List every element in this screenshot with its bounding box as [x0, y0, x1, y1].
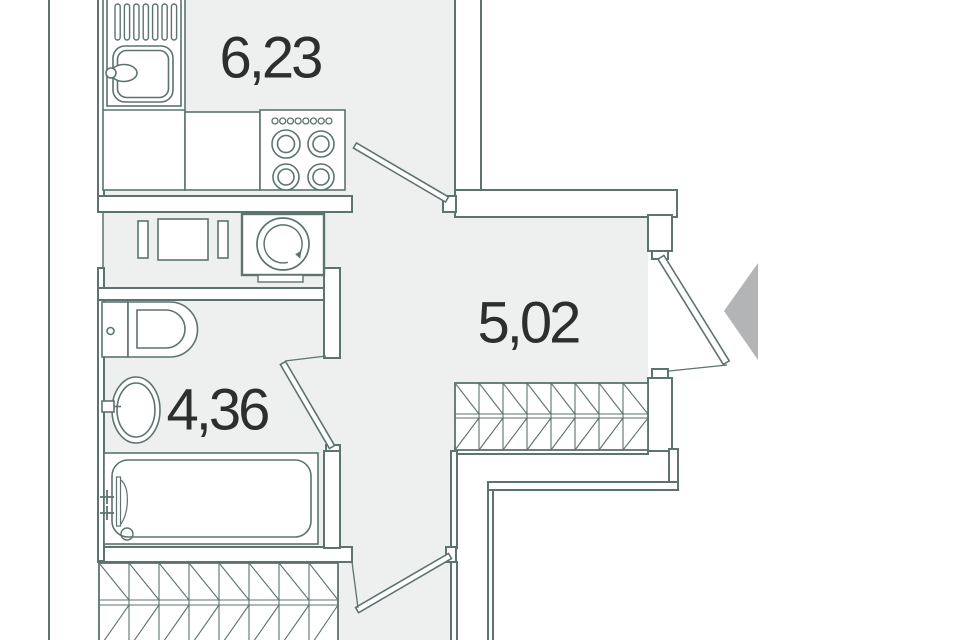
washing-machine-detail: [258, 275, 303, 282]
wall-bath-top: [98, 288, 340, 300]
wall-top-right-band: [455, 190, 677, 217]
niche-shelf-left-bar: [138, 221, 148, 258]
washbasin-tap-icon: [102, 401, 114, 412]
bathtub-inner: [112, 460, 311, 537]
toilet-bowl-inner: [137, 310, 185, 348]
hallway-floor-lower: [340, 383, 455, 549]
wall-lower-right-low: [451, 562, 457, 640]
wall-kitchen-bottom: [98, 196, 352, 212]
hallway-area-label: 5,02: [478, 290, 579, 357]
wall-bottom-boundary: [488, 482, 678, 490]
wall-bath-bottom: [98, 547, 352, 562]
kitchen-door-opening-floor: [344, 196, 443, 212]
wall-right-mid: [648, 378, 672, 451]
entrance-door-swing: [669, 365, 727, 371]
kitchen-area-label: 6,23: [220, 25, 321, 92]
entrance-arrow: [724, 263, 758, 360]
washbasin-inner: [117, 383, 155, 437]
floor-plan: 6,23 5,02 4,36: [0, 0, 960, 640]
niche-shelf: [158, 219, 208, 260]
living-room-wardrobe: [99, 563, 338, 640]
wall-bath-right-pillar: [324, 268, 340, 358]
wall-right-upper: [648, 215, 672, 251]
sink-faucet-base: [106, 68, 116, 78]
toilet-flush-button: [107, 328, 114, 335]
sink-drainer-icon: [115, 4, 177, 40]
hallway-wardrobe: [455, 383, 648, 450]
niche-shelf-right-bar: [218, 221, 228, 258]
wall-entry-jamb-bottom: [652, 369, 668, 378]
bathroom-area-label: 4,36: [167, 377, 268, 444]
wall-hall-lower-right: [451, 451, 457, 548]
entrance-door-leaf: [658, 255, 729, 364]
kitchen-counter-lower: [185, 112, 260, 190]
wall-low-right-line: [488, 490, 493, 640]
wall-bath-right-lower: [324, 451, 340, 548]
toilet-tank: [102, 302, 128, 357]
wall-kitchen-right: [455, 0, 481, 194]
